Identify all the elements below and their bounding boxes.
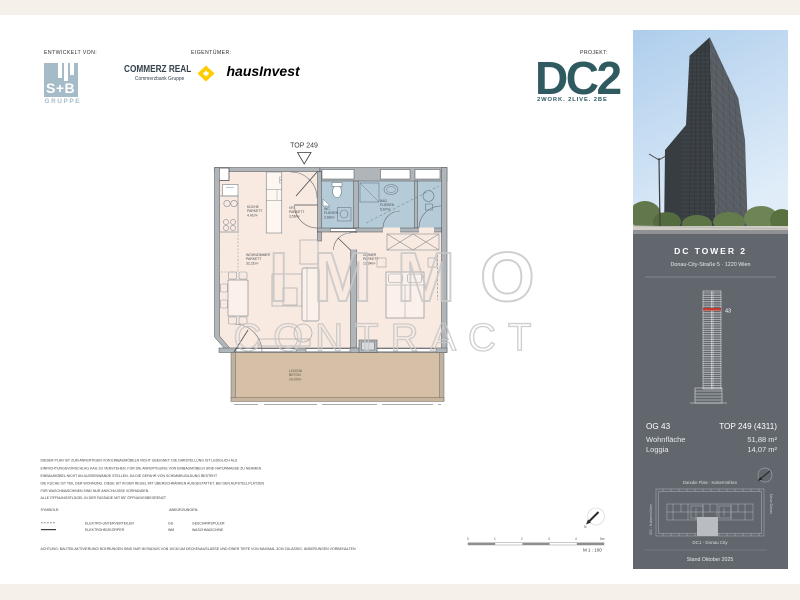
svg-text:DIESER PLAN IST ZUM ANFERTIGEN: DIESER PLAN IST ZUM ANFERTIGEN VON EINBA…	[41, 459, 238, 463]
svg-text:3,56m²: 3,56m²	[289, 214, 300, 218]
svg-text:ACHTUNG: BAUTEILAKTIVIERUNG! B: ACHTUNG: BAUTEILAKTIVIERUNG! BOHRUNGEN S…	[41, 547, 356, 551]
svg-text:SYMBOLE:: SYMBOLE:	[41, 508, 60, 512]
svg-text:Danube Flats - Kaisermühlen: Danube Flats - Kaisermühlen	[683, 480, 738, 485]
svg-text:2,66m²: 2,66m²	[324, 215, 335, 219]
svg-text:ABKÜRZUNGEN:: ABKÜRZUNGEN:	[169, 508, 198, 512]
svg-text:1: 1	[494, 537, 496, 541]
svg-text:EINBAUMÖBEL NICHT AN AUSSENWÄN: EINBAUMÖBEL NICHT AN AUSSENWÄNDE STELLEN…	[41, 474, 218, 478]
svg-text:TOP 249: TOP 249	[290, 143, 318, 150]
svg-text:5m: 5m	[600, 537, 605, 541]
svg-text:ALLE ÖFFNUNGSFLÜGEL IN DER FAS: ALLE ÖFFNUNGSFLÜGEL IN DER FASSADE MIT 8…	[41, 496, 167, 500]
svg-text:2: 2	[521, 537, 523, 541]
svg-text:Stand Oktober 2025: Stand Oktober 2025	[687, 557, 734, 563]
svg-text:32,21m²: 32,21m²	[246, 261, 259, 265]
svg-text:GS: GS	[168, 522, 174, 526]
svg-text:ELEKTROHEIZKÖRPER: ELEKTROHEIZKÖRPER	[85, 528, 125, 532]
svg-text:5,67m²: 5,67m²	[380, 207, 391, 211]
svg-text:3: 3	[548, 537, 550, 541]
svg-text:EINRICHTUNGSVORSCHLAG KAG ZU V: EINRICHTUNGSVORSCHLAG KAG ZU VERSTEHEN. …	[41, 466, 262, 470]
svg-text:43: 43	[725, 309, 731, 315]
svg-text:N: N	[584, 525, 587, 529]
svg-text:CONTRACT: CONTRACT	[234, 317, 544, 360]
svg-text:14,07m²: 14,07m²	[289, 377, 302, 381]
svg-text:4: 4	[575, 537, 577, 541]
svg-text:4,41m²: 4,41m²	[247, 213, 258, 217]
svg-text:M 1 : 100: M 1 : 100	[583, 548, 602, 553]
svg-text:IMMO: IMMO	[269, 238, 560, 316]
svg-text:FÜR WASCHMASCHINEN SIND NUR AN: FÜR WASCHMASCHINEN SIND NUR ANSCHLÜSSE V…	[41, 489, 150, 493]
svg-text:ELEKTRO-UNTERVERTEILER: ELEKTRO-UNTERVERTEILER	[85, 522, 134, 526]
svg-text:0: 0	[467, 537, 469, 541]
svg-text:WM: WM	[168, 528, 174, 532]
svg-text:VIC - Kaisermühlen: VIC - Kaisermühlen	[649, 504, 653, 535]
svg-text:DIE KÜCHE IST TEIL DER WOHNUNG: DIE KÜCHE IST TEIL DER WOHNUNG. DIESE IS…	[41, 481, 265, 485]
svg-text:DC1 - Donau City: DC1 - Donau City	[692, 540, 728, 545]
svg-text:GESCHIRRSPÜLER: GESCHIRRSPÜLER	[192, 522, 225, 526]
svg-text:WASCHMASCHINE: WASCHMASCHINE	[192, 528, 224, 532]
svg-text:Neue Donau: Neue Donau	[769, 494, 773, 514]
